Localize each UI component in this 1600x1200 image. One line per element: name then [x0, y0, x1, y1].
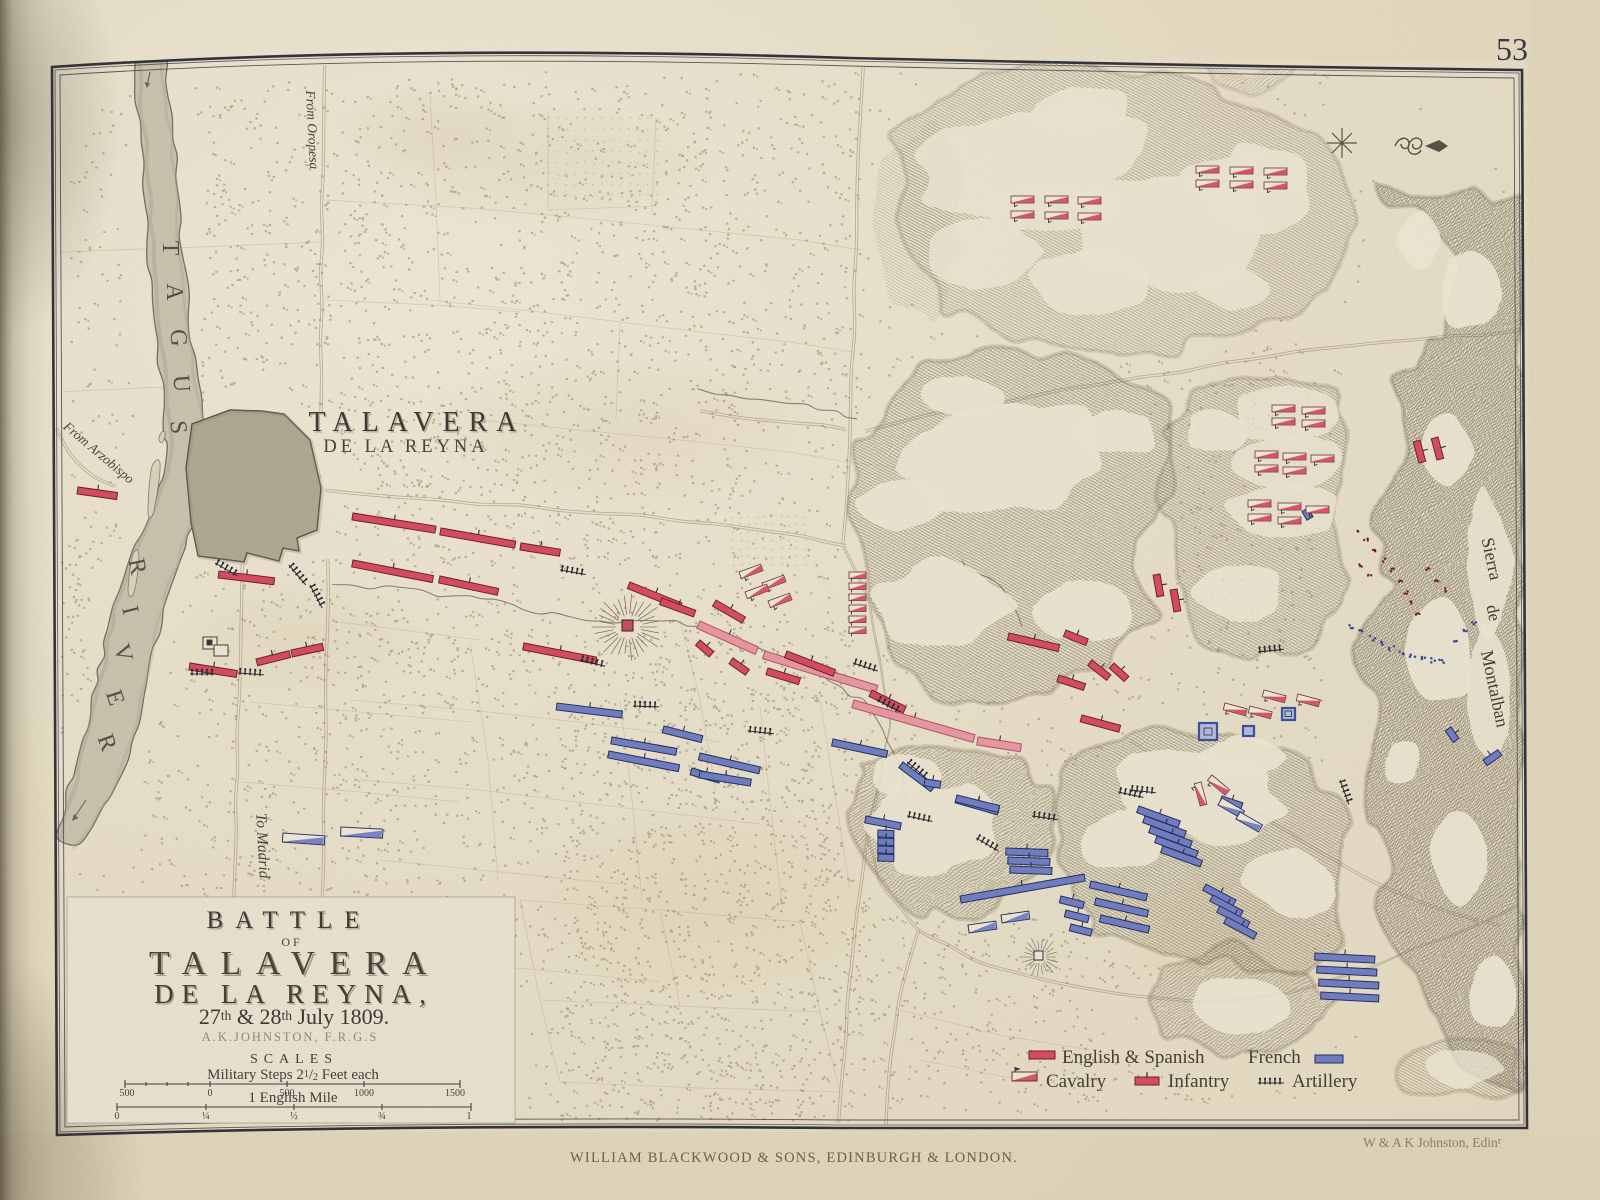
svg-text:To Madrid: To Madrid — [252, 813, 272, 879]
